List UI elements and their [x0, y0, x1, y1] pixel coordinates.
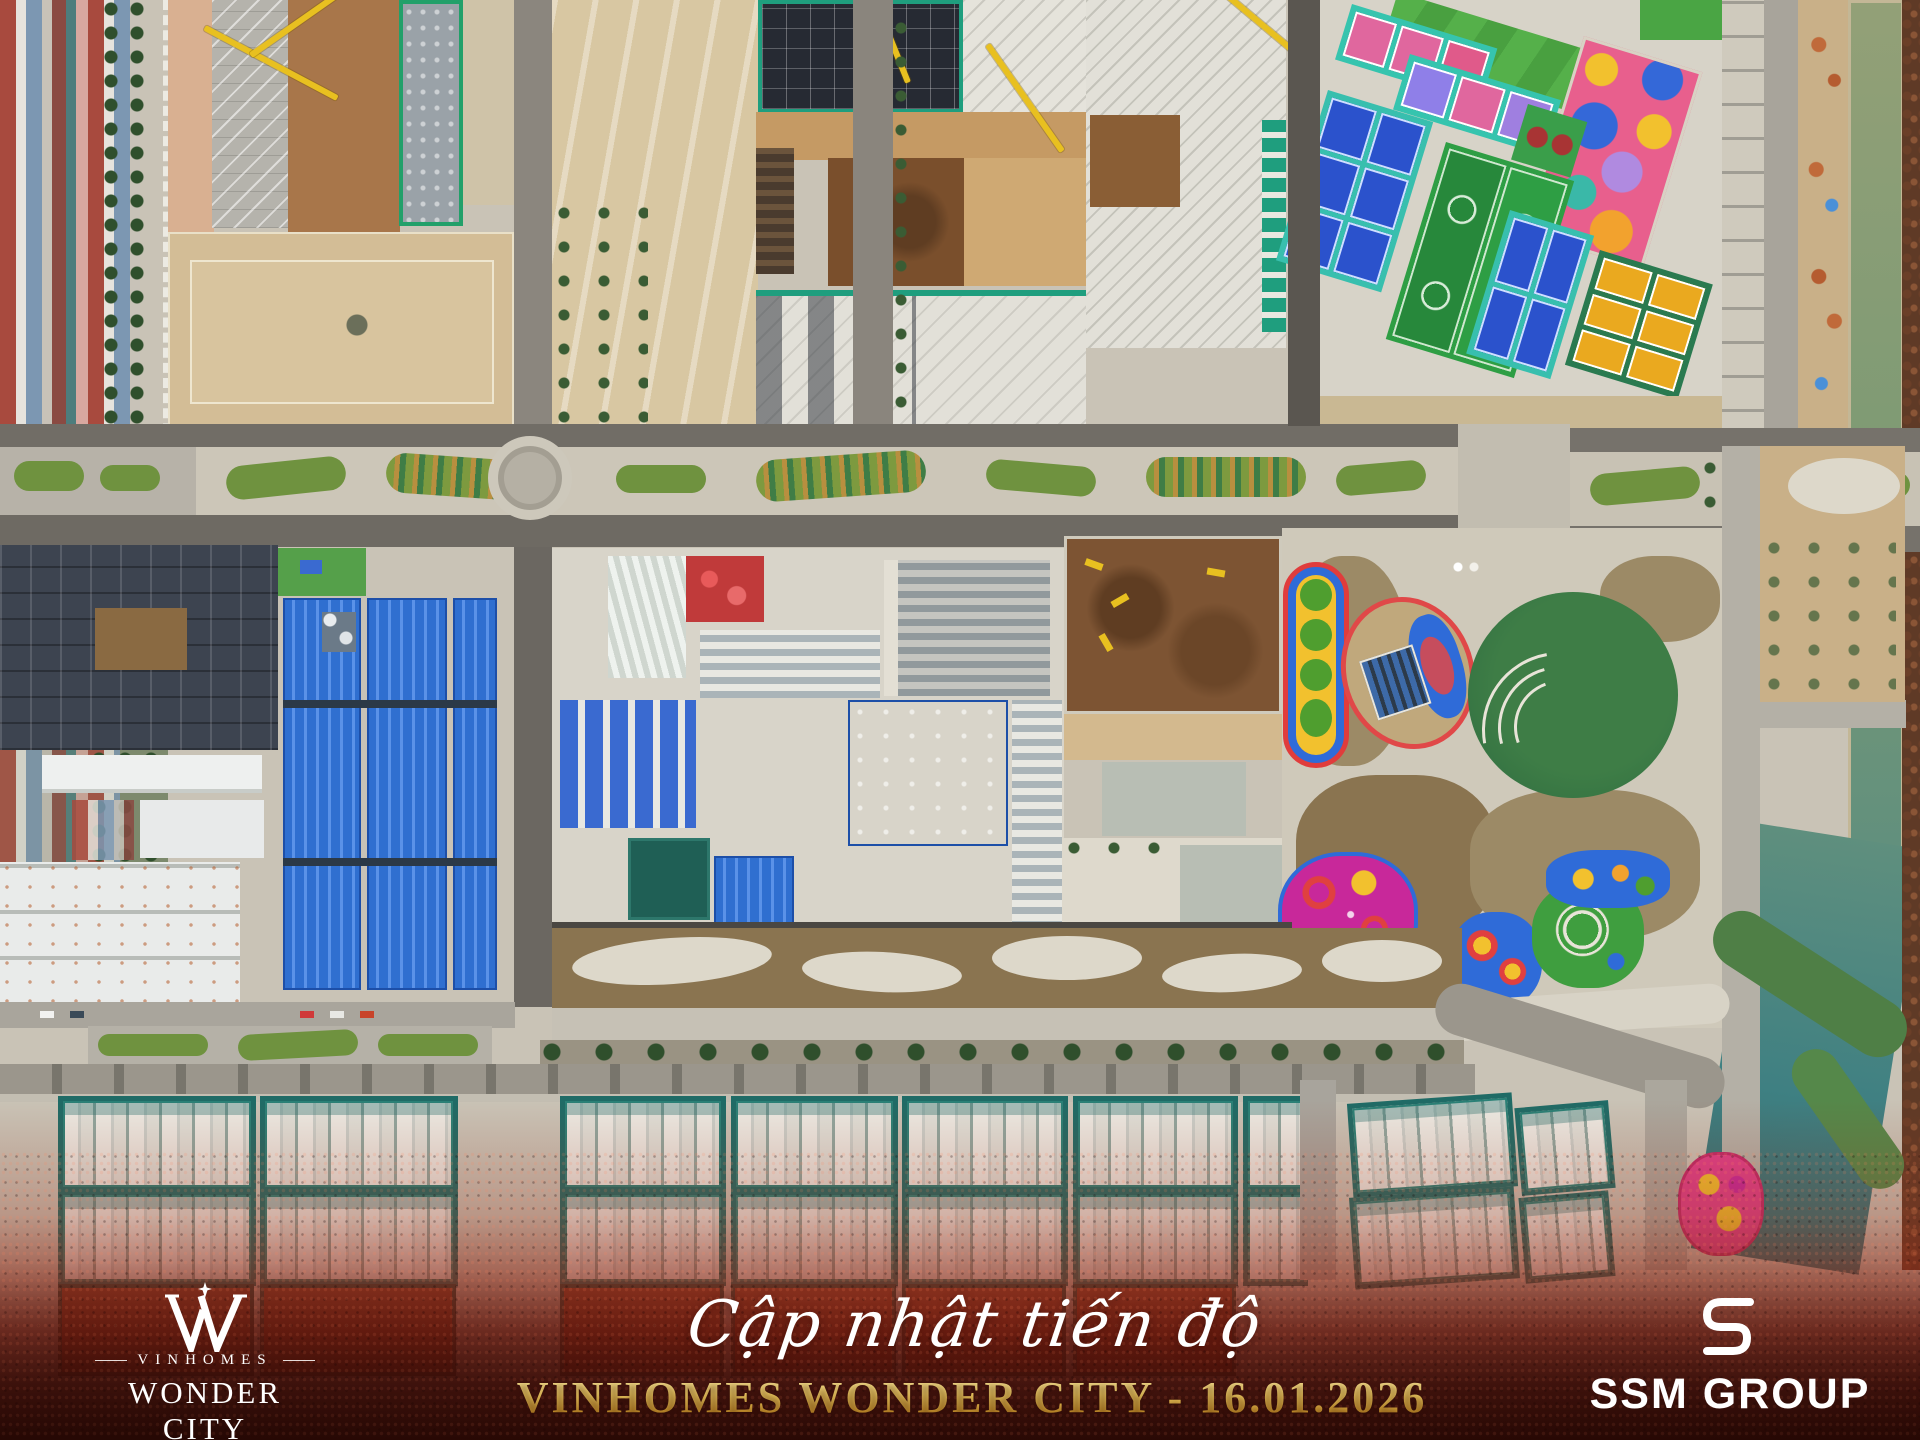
vinhomes-brand-text: VINHOMES [95, 1352, 315, 1369]
ssm-s-icon [1694, 1292, 1766, 1364]
roundabout [488, 436, 572, 520]
pipe-stacks-white [608, 556, 686, 678]
container-stacks-b [898, 560, 1050, 696]
rubble-lot-a [463, 0, 514, 205]
blue-warehouse-b [367, 598, 447, 990]
pad-hedge [1066, 840, 1176, 860]
playground-blue-yellow [1546, 850, 1670, 908]
road-north-b [853, 0, 893, 424]
big-blue-building [848, 700, 1008, 846]
panel-yard-b [1180, 845, 1286, 925]
east-field-shrubs [1766, 540, 1896, 690]
complex-tan [964, 158, 1086, 286]
cars-road [0, 1002, 515, 1028]
container-stacks-c [1012, 700, 1062, 928]
site-sheds-teal [1262, 120, 1286, 332]
road-north-c [1288, 0, 1320, 426]
east-cross-road [1756, 700, 1906, 728]
factory-demolition-patch [95, 608, 187, 670]
progress-poster: VINHOMES WONDER CITY Cập nhật tiến độ VI… [0, 0, 1920, 1440]
worker-housing [72, 800, 134, 860]
blue-warehouse-a [283, 598, 361, 990]
blue-warehouse-c [453, 598, 497, 990]
concrete-pad [1064, 714, 1282, 760]
road-b-trees [893, 20, 915, 420]
ssm-group-logo: SSM GROUP [1580, 1292, 1880, 1419]
boulevard-west-cap [0, 447, 196, 515]
excavation-pit-b [1090, 115, 1180, 207]
blue-building-2 [714, 856, 794, 924]
warehouse-walkway-2 [283, 858, 497, 866]
caption-script: Cập nhật tiến độ [683, 1288, 1267, 1362]
warehouse-walkway [283, 700, 497, 708]
slab-building-b [756, 290, 1086, 426]
shed-blue [300, 560, 322, 574]
white-ground-patch [884, 560, 898, 696]
wonder-city-text: WONDER CITY [95, 1375, 315, 1440]
fenced-green-site [399, 0, 463, 226]
linear-park [552, 928, 1462, 1008]
blue-shed-grid [560, 700, 696, 828]
cleared-lot-walls [190, 260, 494, 404]
white-warehouse-a [42, 755, 262, 793]
picnic-tables [1452, 560, 1492, 574]
dirt-lot-a [288, 0, 400, 232]
w-star-monogram-icon [157, 1282, 253, 1352]
panel-yard-a [1102, 762, 1246, 836]
boulevard-lane-north [0, 424, 1460, 448]
container-stacks-a [700, 630, 880, 698]
villa-strip [1798, 0, 1850, 446]
shrub-patch [556, 205, 648, 427]
boulevard-median [196, 447, 1458, 515]
lawn-strip [278, 548, 366, 596]
caption-headline: VINHOMES WONDER CITY - 16.01.2026 [517, 1372, 1428, 1423]
riverside-esplanade [1722, 0, 1764, 446]
teal-roof-building [628, 838, 710, 920]
road-north-a [514, 0, 552, 424]
foundation-pit [1064, 536, 1282, 714]
ssm-group-text: SSM GROUP [1580, 1370, 1880, 1419]
rebar-stacks [756, 148, 794, 274]
east-field-path [1788, 458, 1900, 514]
great-lawn-oval [1468, 592, 1678, 798]
red-material-pile [686, 556, 764, 622]
white-warehouse-c [0, 862, 240, 1002]
white-warehouse-b [140, 800, 264, 858]
vinhomes-wonder-city-logo: VINHOMES WONDER CITY [95, 1282, 315, 1440]
playground-bead-chain [1283, 562, 1349, 768]
esplanade-walk [552, 1008, 1464, 1040]
riverside-road [1764, 0, 1798, 446]
silver-tanks [322, 612, 356, 652]
west-median-garden [88, 1026, 492, 1064]
road-south-a [514, 547, 552, 1007]
